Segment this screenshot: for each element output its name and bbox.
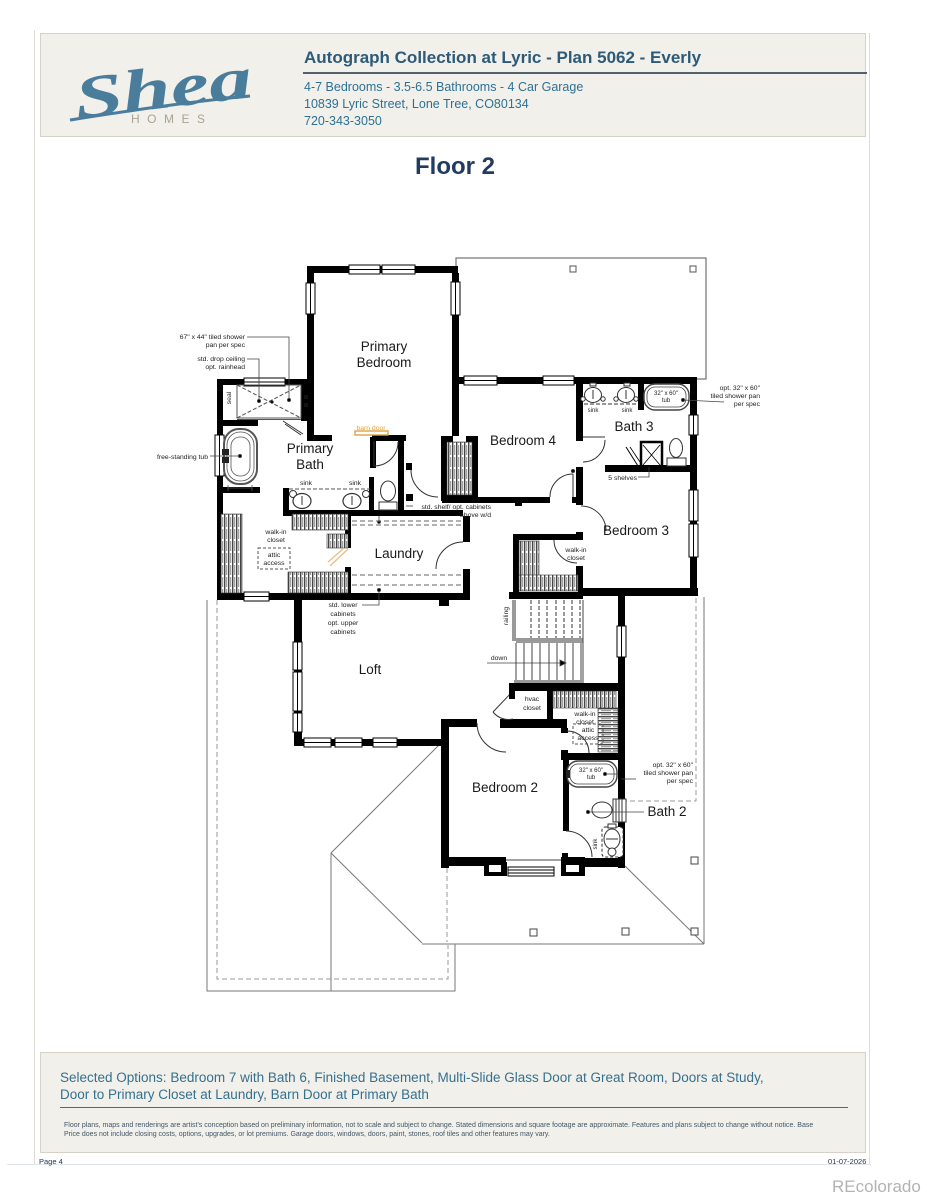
svg-text:32" x 60": 32" x 60" <box>579 768 603 774</box>
svg-text:cabinets: cabinets <box>330 611 356 618</box>
svg-text:walk-in: walk-in <box>264 529 286 536</box>
svg-text:Bath 2: Bath 2 <box>647 804 686 819</box>
svg-text:tub: tub <box>662 398 671 404</box>
svg-text:Laundry: Laundry <box>375 546 424 561</box>
svg-text:Bedroom 3: Bedroom 3 <box>603 523 669 538</box>
svg-text:Bedroom 4: Bedroom 4 <box>490 433 557 448</box>
svg-text:tiled shower pan: tiled shower pan <box>644 770 694 777</box>
svg-text:32" x 60": 32" x 60" <box>654 391 678 397</box>
svg-text:attic: attic <box>268 552 281 559</box>
svg-text:hvac: hvac <box>525 696 540 703</box>
svg-text:Primary: Primary <box>361 339 408 354</box>
svg-text:5 shelves: 5 shelves <box>608 475 637 482</box>
svg-text:barn door: barn door <box>356 425 386 432</box>
svg-text:closet: closet <box>567 555 585 562</box>
svg-text:sink: sink <box>300 480 313 487</box>
svg-text:access: access <box>263 560 285 567</box>
svg-text:walk-in: walk-in <box>564 547 586 554</box>
svg-text:Loft: Loft <box>359 662 382 677</box>
svg-text:opt. upper: opt. upper <box>328 620 359 627</box>
svg-text:std. lower: std. lower <box>328 602 358 609</box>
svg-text:closet: closet <box>523 705 541 712</box>
svg-text:std. drop ceiling: std. drop ceiling <box>197 356 245 363</box>
svg-text:67" x 44" tiled shower: 67" x 44" tiled shower <box>180 334 246 341</box>
svg-text:Bedroom: Bedroom <box>357 355 412 370</box>
svg-text:free-standing tub: free-standing tub <box>157 454 208 461</box>
svg-text:tiled shower pan: tiled shower pan <box>711 393 761 400</box>
svg-text:opt. 32" x 60": opt. 32" x 60" <box>653 762 694 769</box>
svg-text:sink: sink <box>588 408 600 414</box>
svg-text:above w/d: above w/d <box>460 512 491 519</box>
svg-text:tub: tub <box>587 775 596 781</box>
svg-text:per spec: per spec <box>734 401 761 408</box>
svg-text:closet: closet <box>267 537 285 544</box>
svg-text:railing: railing <box>503 607 510 625</box>
svg-text:sink: sink <box>593 838 599 850</box>
svg-text:opt. 32" x 60": opt. 32" x 60" <box>720 385 761 392</box>
svg-text:sink: sink <box>622 408 634 414</box>
svg-text:std. shelf/ opt. cabinets: std. shelf/ opt. cabinets <box>421 504 491 511</box>
svg-text:seal: seal <box>226 391 233 404</box>
svg-text:Primary: Primary <box>287 441 334 456</box>
svg-text:attic: attic <box>582 727 595 734</box>
svg-text:closet: closet <box>576 719 594 726</box>
svg-text:Bath: Bath <box>296 457 324 472</box>
svg-text:Bedroom 2: Bedroom 2 <box>472 780 538 795</box>
svg-text:access: access <box>577 735 599 742</box>
svg-text:Bath 3: Bath 3 <box>614 419 653 434</box>
svg-text:cabinets: cabinets <box>330 629 356 636</box>
svg-text:walk-in: walk-in <box>573 711 595 718</box>
svg-text:per spec: per spec <box>667 778 694 785</box>
svg-text:down: down <box>491 655 507 662</box>
svg-text:opt. rainhead: opt. rainhead <box>205 364 245 371</box>
svg-text:sink: sink <box>349 480 362 487</box>
svg-text:pan per spec: pan per spec <box>206 342 246 349</box>
